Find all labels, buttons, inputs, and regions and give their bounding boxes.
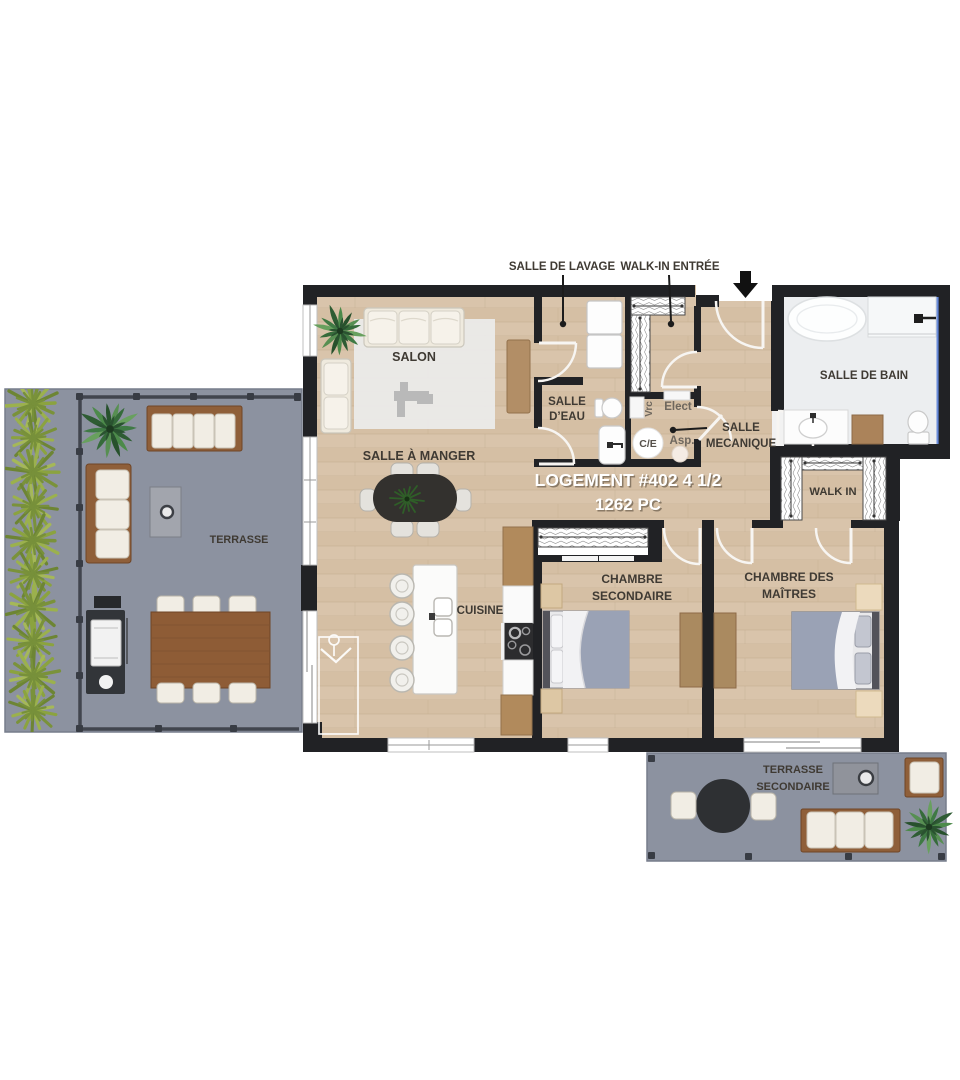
svg-text:SALLE DE LAVAGE: SALLE DE LAVAGE: [509, 261, 616, 273]
svg-text:SECONDAIRE: SECONDAIRE: [756, 781, 829, 793]
svg-text:CUISINE: CUISINE: [457, 605, 504, 617]
svg-text:Asp.: Asp.: [670, 435, 695, 447]
svg-text:D’EAU: D’EAU: [549, 411, 585, 423]
svg-text:MECANIQUE: MECANIQUE: [706, 438, 777, 450]
svg-text:LOGEMENT #402 4 1/2: LOGEMENT #402 4 1/2: [535, 470, 722, 490]
svg-text:CHAMBRE: CHAMBRE: [601, 572, 662, 586]
svg-text:SALLE DE BAIN: SALLE DE BAIN: [820, 370, 908, 382]
svg-text:SECONDAIRE: SECONDAIRE: [592, 589, 672, 603]
svg-text:WALK IN: WALK IN: [809, 486, 856, 498]
svg-text:1262 PC: 1262 PC: [595, 495, 661, 514]
svg-text:TERRASSE: TERRASSE: [763, 764, 823, 776]
svg-text:C/E: C/E: [639, 438, 657, 450]
svg-text:SALLE: SALLE: [722, 422, 760, 434]
svg-text:SALLE: SALLE: [548, 396, 586, 408]
svg-text:CHAMBRE DES: CHAMBRE DES: [744, 570, 833, 584]
svg-text:Elect: Elect: [664, 401, 692, 413]
svg-text:WALK-IN ENTRÉE: WALK-IN ENTRÉE: [620, 260, 719, 273]
svg-text:SALLE À MANGER: SALLE À MANGER: [363, 448, 476, 463]
svg-text:TERRASSE: TERRASSE: [210, 534, 269, 546]
svg-text:Vrc: Vrc: [644, 401, 655, 417]
svg-text:MAÎTRES: MAÎTRES: [762, 586, 816, 601]
svg-text:SALON: SALON: [392, 350, 436, 364]
